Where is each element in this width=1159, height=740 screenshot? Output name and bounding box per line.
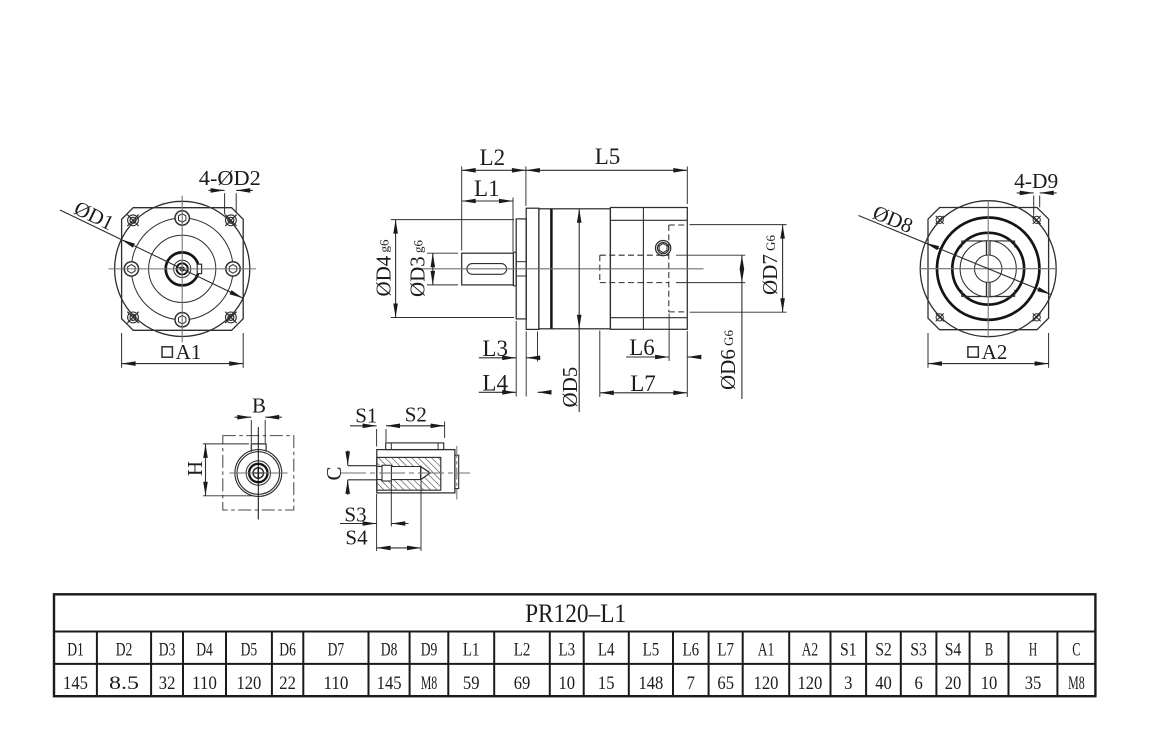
svg-text:3: 3 [844,673,852,694]
svg-text:110: 110 [323,673,348,694]
svg-text:C: C [1072,640,1080,661]
svg-text:69: 69 [514,673,531,694]
svg-text:L3: L3 [559,640,576,661]
svg-text:40: 40 [875,673,892,694]
svg-text:D5: D5 [241,640,258,661]
svg-text:PR120–L1: PR120–L1 [525,599,626,628]
svg-text:L7: L7 [717,640,734,661]
svg-text:6: 6 [914,673,922,694]
svg-text:120: 120 [797,673,822,694]
svg-text:65: 65 [717,673,734,694]
svg-text:A2: A2 [802,640,819,661]
svg-text:4-ØD2: 4-ØD2 [199,166,261,190]
svg-text:D7: D7 [328,640,345,661]
svg-text:L5: L5 [643,640,660,661]
svg-text:S3: S3 [910,640,927,661]
svg-text:A1: A1 [758,640,775,661]
svg-text:4-D9: 4-D9 [1014,169,1058,193]
svg-text:C: C [322,466,346,480]
svg-text:S2: S2 [405,402,427,426]
svg-text:A2: A2 [982,340,1008,364]
svg-text:D2: D2 [116,640,133,661]
svg-text:ØD5: ØD5 [558,363,582,407]
svg-text:H: H [183,461,207,476]
svg-text:148: 148 [638,673,663,694]
svg-text:M8: M8 [421,673,438,694]
svg-text:D6: D6 [279,640,296,661]
svg-text:32: 32 [159,673,176,694]
svg-text:L2: L2 [514,640,531,661]
svg-text:M8: M8 [1068,673,1085,694]
svg-text:D3: D3 [159,640,176,661]
svg-text:D4: D4 [196,640,213,661]
svg-text:D1: D1 [67,640,84,661]
svg-text:L1: L1 [474,176,500,201]
svg-text:L7: L7 [630,371,656,396]
svg-text:59: 59 [463,673,480,694]
svg-text:120: 120 [236,673,261,694]
svg-text:35: 35 [1025,673,1042,694]
svg-text:145: 145 [377,673,402,694]
svg-text:D8: D8 [381,640,398,661]
svg-text:L4: L4 [482,371,508,396]
svg-text:B: B [252,394,266,418]
svg-text:120: 120 [754,673,779,694]
svg-text:S2: S2 [875,640,892,661]
svg-text:S4: S4 [345,525,368,549]
svg-text:S1: S1 [355,403,377,427]
svg-text:110: 110 [192,673,217,694]
svg-text:S1: S1 [840,640,857,661]
svg-text:D9: D9 [421,640,438,661]
svg-text:145: 145 [63,673,88,694]
svg-text:7: 7 [687,673,695,694]
svg-text:L6: L6 [683,640,700,661]
svg-text:10: 10 [981,673,998,694]
svg-text:A1: A1 [176,340,202,364]
svg-text:L5: L5 [595,144,621,169]
svg-text:S4: S4 [945,640,962,661]
svg-text:L6: L6 [629,335,655,360]
svg-text:22: 22 [279,673,296,694]
svg-text:B: B [985,640,993,661]
svg-text:L2: L2 [480,145,506,170]
svg-text:L3: L3 [482,336,508,361]
svg-text:10: 10 [559,673,576,694]
svg-text:20: 20 [945,673,962,694]
svg-text:H: H [1029,640,1037,661]
svg-text:15: 15 [598,673,615,694]
svg-text:8.5: 8.5 [109,673,139,694]
svg-text:L1: L1 [463,640,480,661]
svg-text:L4: L4 [598,640,615,661]
